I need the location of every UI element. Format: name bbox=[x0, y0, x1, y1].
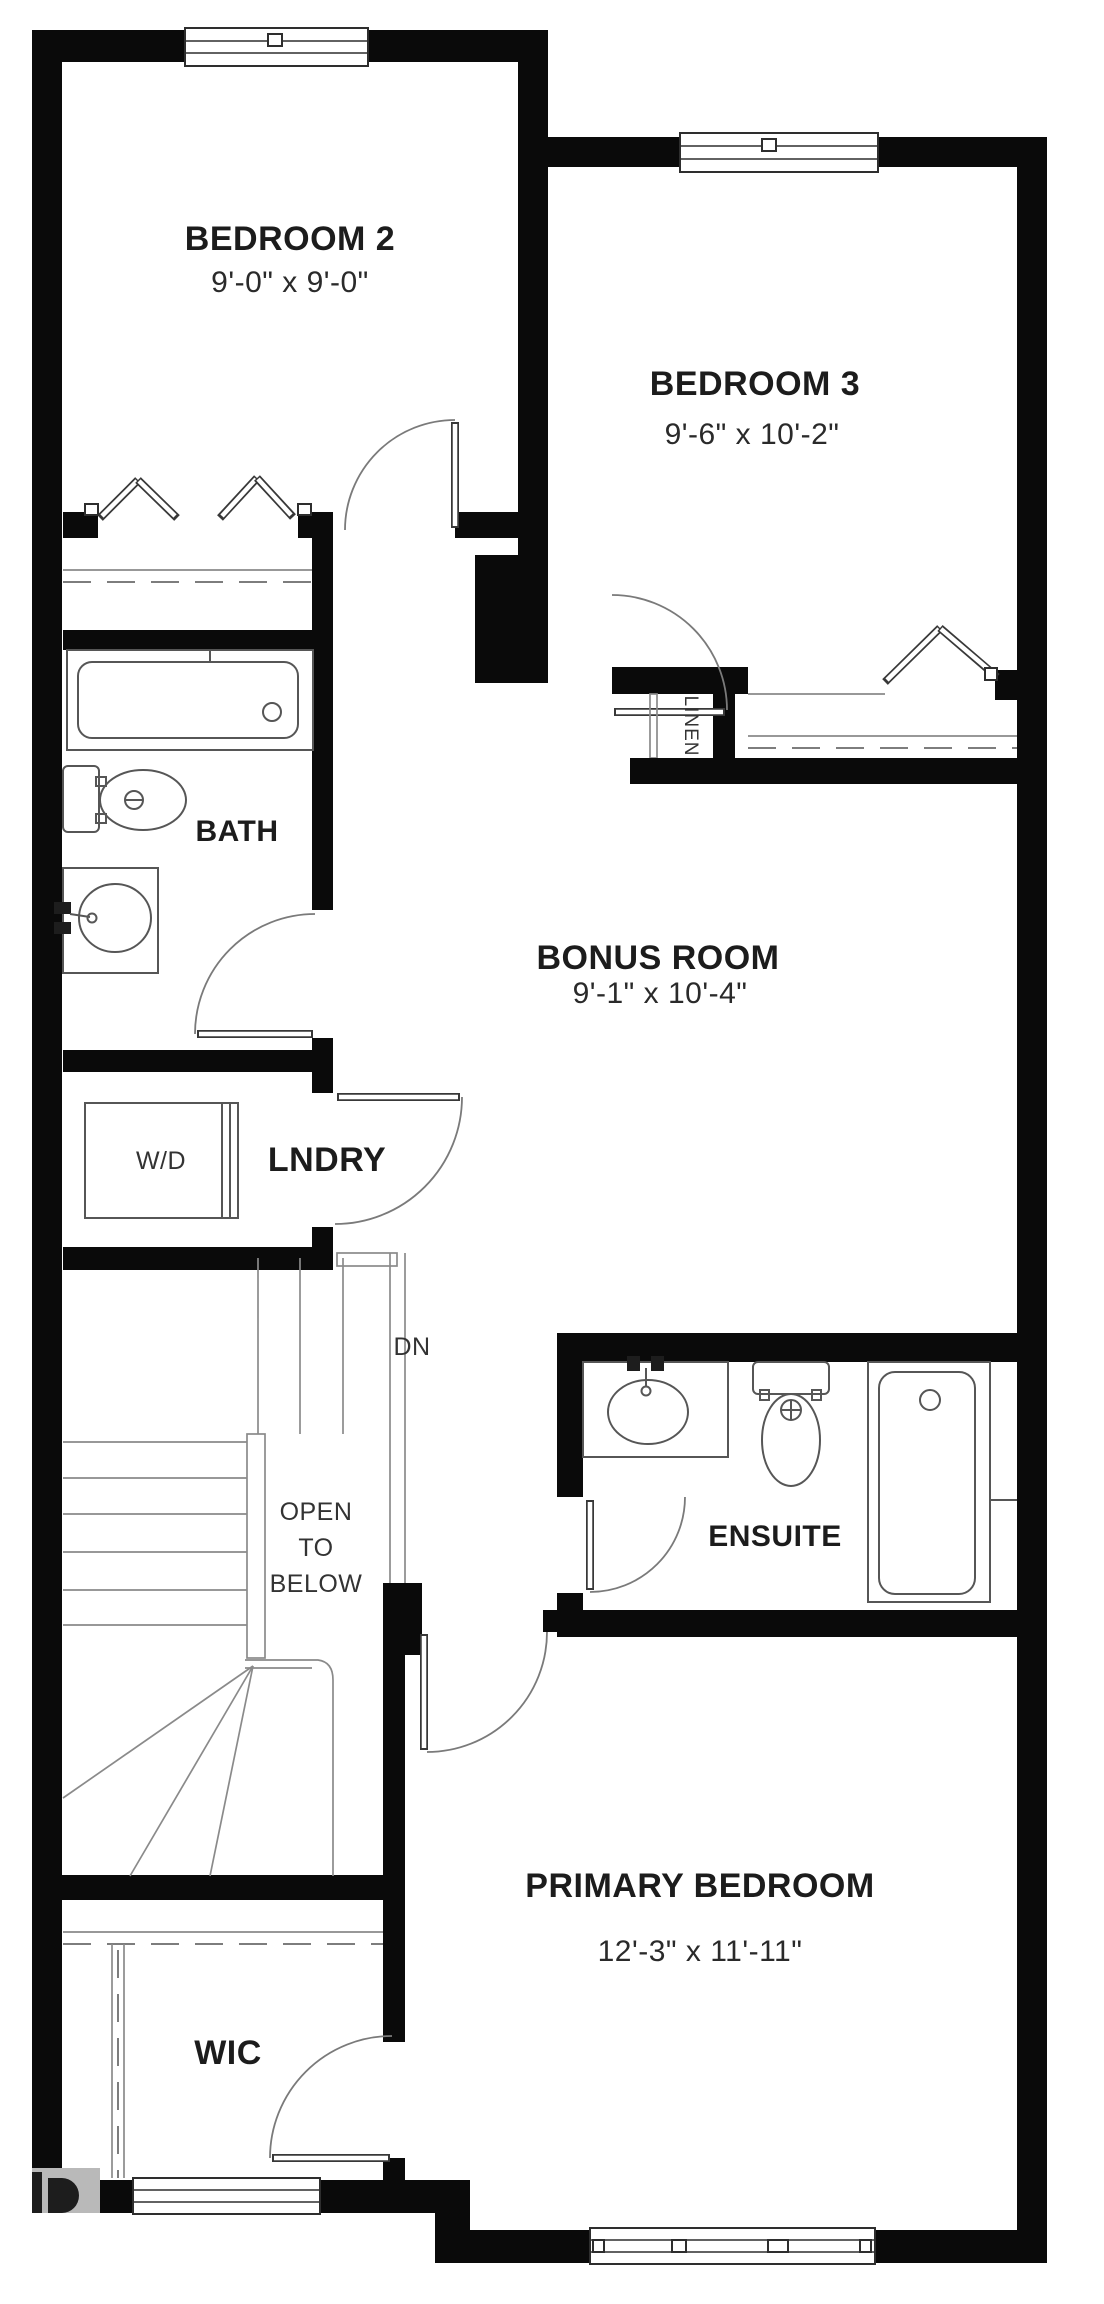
wall-primary-south-b bbox=[875, 2230, 1047, 2263]
wall-ensuite-north bbox=[557, 1333, 1017, 1362]
wall-wic-north bbox=[33, 1875, 405, 1900]
primary-window bbox=[590, 2228, 875, 2264]
ensuite-tub bbox=[868, 1362, 1017, 1602]
linen-label: LINEN bbox=[680, 696, 701, 757]
wall-outer-right bbox=[1017, 137, 1047, 2263]
bathtub bbox=[67, 650, 313, 750]
bedroom2-window bbox=[185, 28, 368, 66]
bedroom2-dims: 9'-0" x 9'-0" bbox=[211, 266, 369, 299]
bedroom3-closet-bifold bbox=[885, 628, 997, 682]
bedroom3-dims: 9'-6" x 10'-2" bbox=[665, 418, 840, 451]
ensuite-label: ENSUITE bbox=[708, 1520, 842, 1553]
bath-door bbox=[195, 914, 315, 1034]
open-to-below-3: BELOW bbox=[270, 1570, 363, 1598]
stairs-dn-label: DN bbox=[393, 1333, 430, 1361]
ensuite-sink bbox=[583, 1356, 728, 1457]
bedroom2-door bbox=[345, 420, 455, 530]
bath-sink bbox=[54, 868, 158, 973]
bath-fixtures bbox=[54, 650, 313, 973]
ensuite-door bbox=[590, 1497, 685, 1592]
wall-primary-south-a bbox=[450, 2230, 590, 2263]
primary-bedroom-dims: 12'-3" x 11'-11" bbox=[598, 1935, 803, 1968]
bath-toilet bbox=[63, 766, 186, 832]
windows bbox=[133, 28, 878, 2264]
wall-laundry-east-top bbox=[312, 1038, 333, 1093]
ensuite-fixtures bbox=[583, 1356, 1017, 1602]
bedroom3-window bbox=[680, 133, 878, 172]
wall-bath-north bbox=[63, 630, 333, 650]
open-to-below-2: TO bbox=[298, 1534, 333, 1562]
bedroom2-label: BEDROOM 2 bbox=[185, 220, 395, 258]
bonus-room-label: BONUS ROOM bbox=[537, 939, 780, 977]
floorplan-canvas: BEDROOM 2 9'-0" x 9'-0" BEDROOM 3 9'-6" … bbox=[0, 0, 1104, 2304]
wall-stair-corner bbox=[383, 1583, 422, 1655]
wic-label: WIC bbox=[194, 2034, 262, 2072]
wall-divider-stub bbox=[475, 555, 548, 683]
wall-ensuite-south bbox=[583, 1610, 1017, 1637]
bedroom2-closet-bifold bbox=[85, 478, 311, 518]
labels: BEDROOM 2 9'-0" x 9'-0" BEDROOM 3 9'-6" … bbox=[136, 220, 875, 2072]
wall-laundry-south bbox=[63, 1247, 333, 1270]
wall-bed2-door-jamb bbox=[455, 512, 518, 538]
wall-bath-laundry bbox=[63, 1050, 333, 1072]
primary-bedroom-label: PRIMARY BEDROOM bbox=[525, 1867, 874, 1905]
ensuite-toilet bbox=[753, 1362, 829, 1486]
laundry-label: LNDRY bbox=[268, 1141, 386, 1179]
wall-linen-north bbox=[612, 667, 748, 694]
wall-bath-east bbox=[312, 512, 333, 910]
wall-ensuite-west bbox=[557, 1362, 583, 1497]
floorplan-svg: BEDROOM 2 9'-0" x 9'-0" BEDROOM 3 9'-6" … bbox=[0, 0, 1104, 2304]
wall-bedroom-divider bbox=[518, 30, 548, 555]
bonus-room-dims: 9'-1" x 10'-4" bbox=[573, 977, 748, 1010]
wall-linen-east bbox=[713, 694, 735, 758]
wall-outer-left bbox=[32, 30, 62, 2180]
bedroom3-label: BEDROOM 3 bbox=[650, 365, 860, 403]
bath-label: BATH bbox=[195, 815, 278, 848]
open-to-below-1: OPEN bbox=[280, 1498, 353, 1526]
builder-logo bbox=[32, 2168, 100, 2213]
stairs bbox=[63, 1253, 405, 1876]
bedroom3-door bbox=[612, 595, 727, 712]
wic-door bbox=[270, 2036, 392, 2158]
wd-label: W/D bbox=[136, 1147, 186, 1175]
wic-window bbox=[133, 2178, 320, 2214]
wall-bonus-south-jamb bbox=[543, 1610, 597, 1632]
wall-wic-south-b bbox=[317, 2180, 470, 2213]
primary-door bbox=[424, 1632, 547, 1752]
